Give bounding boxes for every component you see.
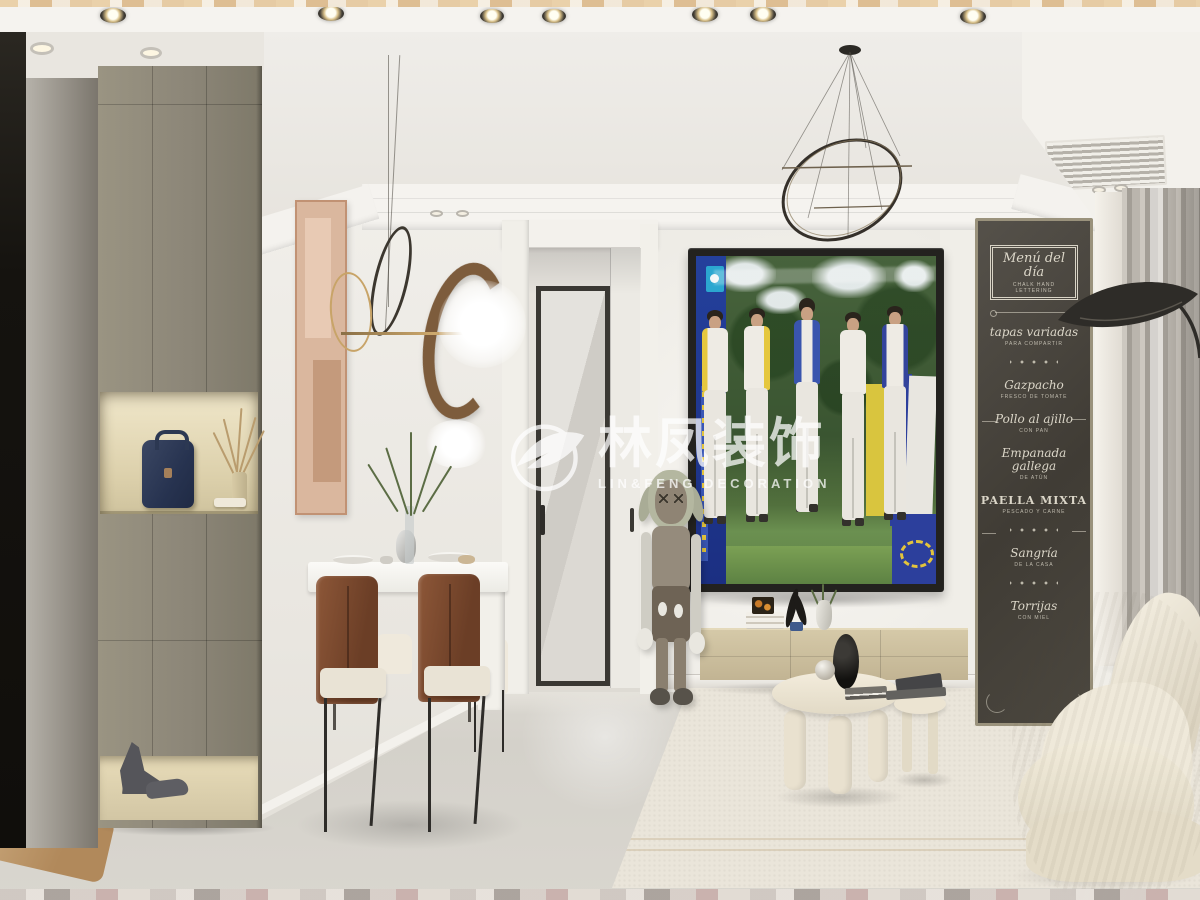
figure-arm bbox=[641, 532, 651, 636]
plate bbox=[333, 555, 373, 564]
table-leg bbox=[868, 710, 888, 782]
chalk-dash bbox=[1072, 419, 1086, 420]
handbag bbox=[142, 440, 194, 508]
brand-name-cn: 林凤装饰 bbox=[598, 414, 830, 474]
menu-item-note: DE ATÚN bbox=[978, 475, 1090, 481]
menu-item-note: CON PAN bbox=[995, 428, 1073, 434]
dried-plant bbox=[218, 402, 262, 478]
figure-torso bbox=[652, 526, 690, 592]
downlight bbox=[456, 210, 469, 217]
dark-door-edge bbox=[0, 26, 26, 848]
cup bbox=[380, 556, 393, 564]
brand-name-en: LIN&FENG DECORATION bbox=[598, 476, 830, 491]
chalk-dash bbox=[982, 533, 996, 534]
figure-foot bbox=[650, 688, 670, 705]
menu-item-name: Empanada gallega bbox=[978, 447, 1090, 473]
door-handle bbox=[630, 508, 634, 532]
menu-item: Pollo al ajillo CON PAN bbox=[995, 413, 1073, 434]
decor-vase bbox=[816, 600, 832, 630]
side-stool bbox=[894, 694, 946, 780]
stool-leg bbox=[928, 710, 938, 774]
hallway-downlight bbox=[30, 42, 54, 55]
cabinet-door-seam bbox=[98, 104, 262, 105]
chair-leg bbox=[324, 698, 327, 832]
chandelier-icon bbox=[770, 40, 930, 250]
person-shirt bbox=[702, 328, 728, 392]
dining-set-shadow bbox=[295, 800, 525, 850]
person-shirt bbox=[840, 330, 866, 394]
menu-item-note: PESCADO Y CARNE bbox=[981, 509, 1087, 515]
menu-item-note: DE LA CASA bbox=[1010, 562, 1058, 568]
person-shirt bbox=[794, 320, 820, 384]
dining-chair-seat bbox=[320, 668, 386, 698]
folded-cloth bbox=[214, 498, 246, 507]
image-edge-artifact-top bbox=[0, 0, 1200, 7]
laptop bbox=[886, 676, 946, 704]
downlight bbox=[750, 7, 776, 22]
figure-arm bbox=[691, 534, 701, 638]
stool-leg bbox=[902, 710, 912, 772]
hallway-downlight bbox=[140, 47, 162, 59]
high-heels bbox=[112, 740, 186, 808]
menu-item: Empanada gallega DE ATÚN bbox=[978, 447, 1090, 481]
dining-chair-seat bbox=[424, 666, 490, 696]
figure-foot bbox=[673, 688, 693, 705]
chalk-corner-flourish bbox=[986, 691, 1008, 713]
sofa-pleat-texture bbox=[1012, 592, 1200, 900]
ring-chandelier bbox=[770, 40, 930, 250]
chair-leg bbox=[502, 690, 504, 752]
downlight bbox=[542, 9, 566, 23]
pendant-bulb-glow bbox=[438, 280, 526, 368]
chalk-flourish bbox=[1010, 526, 1058, 534]
chalk-flourish bbox=[1010, 579, 1058, 587]
living-room-photo: Menú del día CHALK HAND LETTERING tapas … bbox=[0, 0, 1200, 900]
wall-pillar bbox=[26, 78, 98, 848]
brand-text: 林凤装饰 LIN&FENG DECORATION bbox=[598, 414, 830, 491]
small-decor bbox=[790, 622, 803, 631]
menu-item: PAELLA MIXTA PESCADO Y CARNE bbox=[981, 494, 1087, 515]
book-stack bbox=[746, 612, 784, 629]
chair-leg bbox=[428, 698, 431, 832]
abstract-wall-art bbox=[295, 200, 347, 515]
chalk-dash bbox=[982, 421, 996, 422]
branch bbox=[410, 432, 412, 516]
person-shirt bbox=[882, 324, 908, 388]
menu-item: Sangría DE LA CASA bbox=[1010, 547, 1058, 568]
lounge-sofa bbox=[1012, 592, 1200, 900]
crown-molding bbox=[362, 184, 1040, 230]
figure-leg bbox=[674, 638, 686, 692]
downlight bbox=[960, 9, 986, 24]
figure-glove bbox=[689, 632, 705, 654]
book-stack bbox=[845, 686, 888, 700]
arc-floor-lamp bbox=[1050, 258, 1200, 398]
downlight bbox=[318, 6, 344, 21]
cabinet-door-seam bbox=[98, 640, 262, 641]
chalk-dash bbox=[1072, 531, 1086, 532]
downlight bbox=[480, 9, 504, 23]
lamp-shade-icon bbox=[1050, 258, 1200, 398]
green-branches bbox=[366, 430, 456, 516]
brand-leaf-logo-icon bbox=[508, 418, 586, 496]
table-leg bbox=[828, 716, 852, 794]
watermark: 林凤装饰 LIN&FENG DECORATION bbox=[508, 414, 888, 510]
menu-item-name: PAELLA MIXTA bbox=[981, 494, 1087, 507]
bowl bbox=[458, 555, 475, 564]
person-shirt bbox=[744, 326, 770, 390]
downlight bbox=[430, 210, 443, 217]
person-head bbox=[801, 307, 813, 321]
smart-speaker bbox=[833, 634, 859, 689]
menu-item-name: Pollo al ajillo bbox=[995, 413, 1073, 426]
figure-glove bbox=[637, 628, 653, 650]
figure-shorts bbox=[652, 586, 690, 642]
branch bbox=[385, 447, 409, 514]
downlight bbox=[692, 7, 718, 22]
menu-item-name: Sangría bbox=[1010, 547, 1058, 560]
laptop-base bbox=[886, 687, 946, 700]
image-edge-artifact-bottom bbox=[0, 889, 1200, 900]
heel-shoe bbox=[145, 778, 189, 800]
figure-leg bbox=[656, 638, 668, 692]
downlight bbox=[100, 8, 126, 23]
mini-art-print bbox=[752, 597, 774, 614]
decor-sphere bbox=[815, 660, 835, 680]
table-leg bbox=[784, 710, 806, 790]
